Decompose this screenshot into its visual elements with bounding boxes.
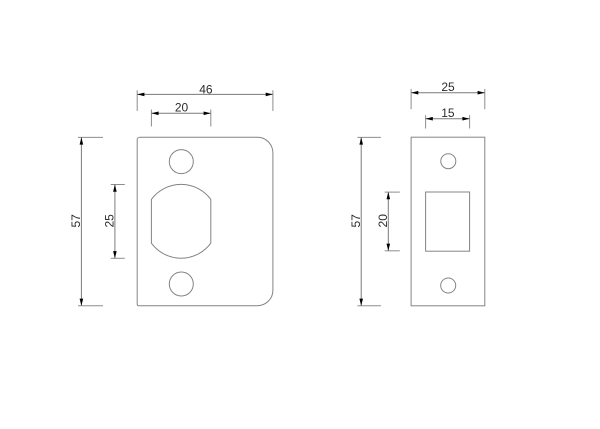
svg-text:25: 25 xyxy=(103,214,117,228)
svg-text:57: 57 xyxy=(349,214,363,228)
svg-text:15: 15 xyxy=(441,106,455,120)
svg-text:20: 20 xyxy=(376,214,390,228)
svg-text:20: 20 xyxy=(175,101,189,115)
svg-text:25: 25 xyxy=(441,80,455,94)
svg-text:46: 46 xyxy=(199,83,213,97)
svg-text:57: 57 xyxy=(69,214,83,228)
